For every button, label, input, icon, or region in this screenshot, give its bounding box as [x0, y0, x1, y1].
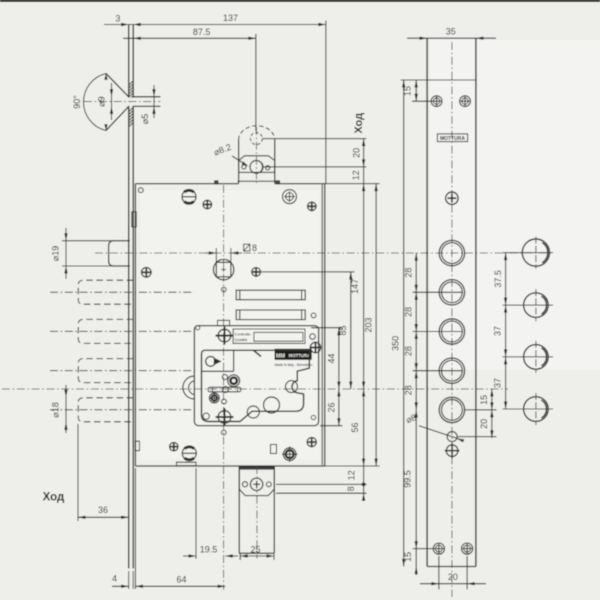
svg-text:26: 26 [326, 402, 336, 412]
svg-text:8: 8 [252, 243, 257, 253]
svg-text:37.5: 37.5 [493, 270, 503, 288]
svg-text:12: 12 [351, 170, 361, 180]
svg-text:3: 3 [115, 14, 120, 24]
svg-text:12: 12 [347, 470, 357, 480]
svg-text:85: 85 [338, 325, 348, 335]
svg-text:20: 20 [352, 148, 362, 158]
svg-text:25: 25 [250, 545, 260, 555]
svg-text:137: 137 [223, 13, 238, 23]
svg-text:37: 37 [492, 326, 502, 336]
svg-text:8: 8 [346, 486, 356, 491]
svg-text:MOTTURA: MOTTURA [440, 136, 465, 142]
svg-text:⌀19: ⌀19 [51, 246, 61, 261]
svg-text:MOTTURA: MOTTURA [289, 353, 310, 358]
svg-text:87.5: 87.5 [193, 27, 211, 37]
svg-text:90°: 90° [72, 95, 82, 109]
svg-text:350: 350 [390, 336, 400, 351]
svg-text:Qualità: Qualità [235, 337, 248, 342]
svg-text:28: 28 [403, 307, 413, 317]
svg-text:64: 64 [176, 574, 186, 584]
svg-text:28: 28 [403, 346, 413, 356]
svg-text:147: 147 [350, 279, 360, 294]
svg-text:56: 56 [350, 422, 360, 432]
svg-text:19.5: 19.5 [200, 545, 218, 555]
svg-text:28: 28 [403, 385, 413, 395]
svg-text:20: 20 [448, 572, 458, 582]
svg-text:35: 35 [446, 27, 456, 37]
svg-text:Made in Italy - Brevettato: Made in Italy - Brevettato [275, 363, 313, 367]
svg-text:15: 15 [479, 395, 489, 405]
svg-text:37: 37 [492, 378, 502, 388]
svg-text:36: 36 [98, 505, 108, 515]
svg-text:20: 20 [479, 419, 489, 429]
svg-text:⌀18: ⌀18 [51, 402, 61, 417]
svg-text:28: 28 [403, 268, 413, 278]
svg-text:Ход: Ход [43, 492, 65, 504]
svg-text:MM: MM [276, 353, 285, 359]
svg-text:44: 44 [326, 353, 336, 363]
svg-text:Ход: Ход [353, 113, 365, 134]
svg-text:⌀5: ⌀5 [140, 114, 150, 124]
svg-text:⌀9: ⌀9 [97, 96, 107, 106]
svg-text:4: 4 [112, 574, 117, 584]
svg-text:203: 203 [363, 317, 373, 332]
